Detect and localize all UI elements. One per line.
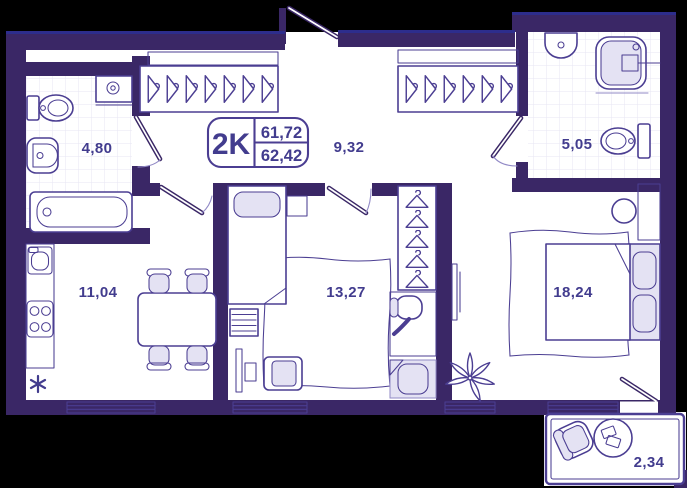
room-label-bedroom-small: 13,27 — [326, 284, 366, 301]
badge-type-label: 2K — [212, 128, 251, 161]
sink-icon — [27, 138, 58, 173]
type-badge: 2K 61,72 62,42 — [208, 118, 308, 167]
sink-icon — [545, 33, 577, 58]
room-label-kitchen: 11,04 — [79, 284, 118, 301]
pillow — [234, 192, 280, 217]
wardrobe — [140, 66, 278, 112]
wardrobe — [398, 66, 518, 112]
floor-plan: 4,80 2K 61,72 — [0, 0, 687, 488]
armchair — [264, 357, 302, 390]
bench — [390, 360, 436, 398]
room-label-bathroom-large: 5,05 — [562, 136, 593, 153]
pouf — [612, 199, 636, 223]
badge-area-top: 61,72 — [261, 124, 302, 142]
room-balcony: 2,34 — [546, 414, 684, 484]
room-label-bathroom-small: 4,80 — [82, 140, 113, 157]
bathtub-icon — [30, 192, 132, 232]
balcony-table — [594, 419, 632, 457]
room-label-bedroom-large: 18,24 — [553, 284, 593, 301]
floor-plan-drawing: 4,80 2K 61,72 — [0, 0, 687, 488]
toilet-icon — [27, 95, 73, 121]
room-label-hallway: 9,32 — [334, 139, 365, 156]
room-label-balcony: 2,34 — [634, 454, 665, 471]
dresser — [230, 309, 258, 336]
bed-single — [228, 186, 286, 304]
badge-area-bottom: 62,42 — [261, 147, 302, 165]
washing-machine-icon — [96, 76, 132, 105]
dining-table — [138, 293, 216, 346]
closet — [398, 186, 436, 290]
